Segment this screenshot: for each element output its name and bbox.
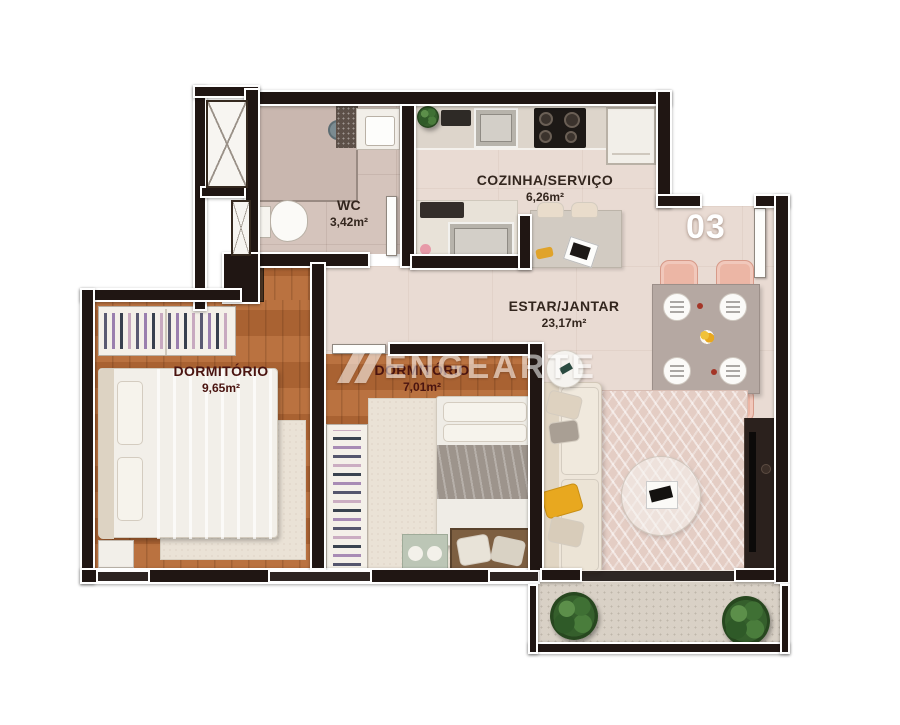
plate-icon [719,357,747,385]
bedroom1-label-name: DORMITÓRIO [174,363,269,381]
kitchen-sink-basin [480,114,512,142]
sink-basin [365,116,395,146]
wc-door [386,196,397,256]
elevator-shaft [206,100,248,188]
dining-table [652,284,760,394]
window [268,570,372,583]
single-bed [436,396,534,546]
magazine-cover [570,242,591,260]
living-label: ESTAR/JANTAR 23,17m² [509,298,620,331]
hanging-clothes-icon [104,313,230,349]
bedroom1-label-area: 9,65m² [174,381,269,396]
burner-icon [565,131,577,143]
wall [400,104,416,268]
wc-label-area: 3,42m² [330,215,368,230]
watermark: ENGEARTE [345,348,597,387]
wall [774,194,790,584]
kitchen-plant-icon [417,106,439,128]
bedroom2-wardrobe [326,424,368,572]
burner-icon [539,112,553,126]
bedroom1-bench [98,540,134,568]
bed-foot-storage [450,528,532,572]
burner-icon [564,112,580,128]
storage-pillow [490,535,527,567]
bathroom-counter [336,106,358,148]
wall [410,254,532,270]
bench-seat-icon [408,546,423,561]
coffee-table-book [646,481,678,509]
balcony-wall [528,642,790,654]
tv-led-icon [761,464,771,474]
bathroom-sink [356,108,400,150]
bed-pillow [443,402,527,422]
watermark-text: ENGEARTE [384,348,597,387]
coffee-table [621,456,701,536]
storage-pillow [456,533,492,566]
window [96,570,150,583]
balcony-wall [780,584,790,654]
sliding-glass-door [582,570,734,582]
wall [193,85,207,311]
throw-pillow [548,419,581,445]
kitchen-label-area: 6,26m² [477,190,613,205]
balcony-plant [550,592,598,640]
wall [518,214,532,270]
wc-label: WC 3,42m² [330,197,368,230]
bench-seat-icon [427,546,442,561]
napkin-dot-icon [711,369,717,375]
balcony-plant [722,596,770,646]
plate-icon [663,357,691,385]
window [488,570,540,583]
cooktop [534,108,586,148]
bed-pillow [443,424,527,442]
balcony-wall [528,584,538,654]
bed-blanket [437,445,535,499]
unit-number: 03 [686,208,726,247]
refrigerator [606,107,656,165]
plate-icon [719,293,747,321]
wardrobe-divider [165,309,167,355]
headboard [99,369,114,539]
burner-icon [539,130,552,143]
washer [420,202,464,218]
bed-pillow [117,457,143,521]
refrigerator-door-line [612,153,650,155]
sofa [538,382,602,574]
kitchen-label: COZINHA/SERVIÇO 6,26m² [477,172,613,205]
hanging-clothes-icon [333,430,361,566]
toilet-bowl [270,200,308,242]
wall [250,90,672,106]
tv-screen [749,432,756,552]
wall [80,288,242,302]
wall [656,194,702,208]
wc-label-name: WC [330,197,368,215]
wall [734,568,776,582]
living-label-area: 23,17m² [509,316,620,331]
kitchen-sink [474,108,518,148]
wall [310,262,326,570]
floor-plan: 03 [0,0,900,725]
tv-panel [744,418,775,568]
watermark-logo-icon [345,353,374,383]
plate-icon [663,293,691,321]
bedroom2-bench [402,534,448,572]
bedroom1-label: DORMITÓRIO 9,65m² [174,363,269,396]
bed-pillow [117,381,143,445]
wall [540,568,582,582]
kitchen-shelf [441,110,471,126]
wall [656,90,672,208]
duct-shaft [231,200,251,256]
entry-door [754,208,766,278]
wall [80,288,95,584]
bedroom1-wardrobe [98,306,236,356]
living-label-name: ESTAR/JANTAR [509,298,620,316]
table-centerpiece-icon [699,329,715,345]
kitchen-label-name: COZINHA/SERVIÇO [477,172,613,190]
book-cover [649,486,673,503]
napkin-dot-icon [697,303,703,309]
